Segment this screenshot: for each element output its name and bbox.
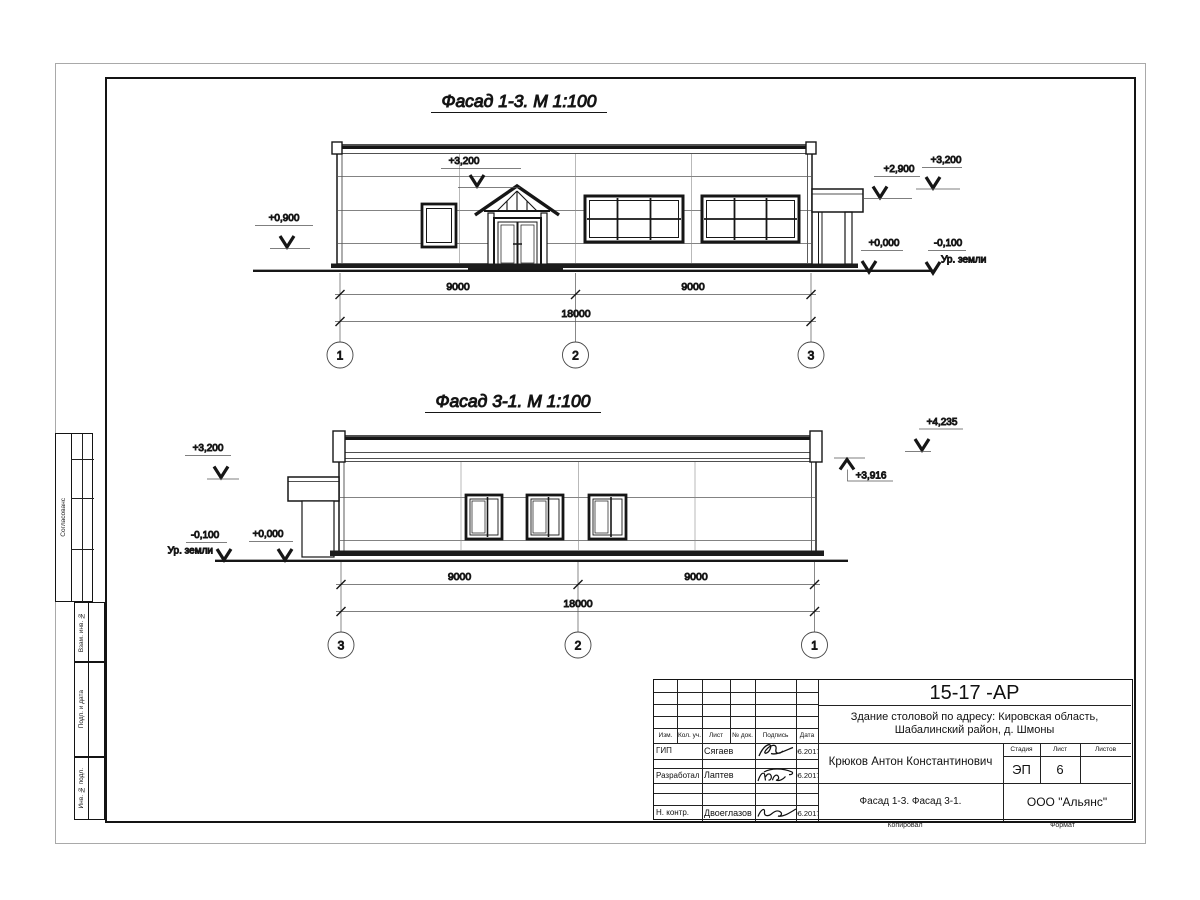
elevation-label: +3,200 bbox=[193, 443, 224, 454]
col-kol-uch: Кол. уч. bbox=[677, 728, 702, 743]
agreed-label: Согласованс bbox=[60, 498, 67, 537]
elevation-label: +3,916 bbox=[856, 471, 887, 482]
title-block: Изм. Кол. уч. Лист № док. Подпись Дата Г… bbox=[653, 679, 1133, 820]
approval-stamp-box: Согласованс bbox=[55, 433, 93, 602]
document-number: 15-17 -АР bbox=[818, 680, 1131, 705]
role-developer: Разработал bbox=[654, 768, 704, 783]
facade1-title: Фасад 1-3. М 1:100 bbox=[442, 91, 597, 111]
ground-level-label: Ур. земли bbox=[168, 546, 213, 557]
facade1-window-small bbox=[422, 204, 456, 247]
elevation-label: -0,100 bbox=[191, 530, 220, 541]
facade-1-3: Фасад 1-3. М 1:100 bbox=[253, 91, 986, 368]
role-ncontrol: Н. контр. bbox=[654, 805, 704, 821]
date-ncontrol: 06.2017 bbox=[796, 805, 818, 821]
company-name: ООО "Альянс" bbox=[1003, 783, 1131, 821]
vzam-inv-cell: Взам. инв. № bbox=[74, 602, 105, 662]
facade2-window-1 bbox=[466, 495, 502, 539]
chief-name: Крюков Антон Константинович bbox=[818, 743, 1003, 783]
facade2-dimensions: 9000 9000 18000 3 2 1 bbox=[328, 562, 828, 658]
dim-label: 9000 bbox=[684, 571, 708, 583]
name-gip: Сягаев bbox=[702, 743, 757, 759]
format-label: Формат bbox=[1030, 822, 1095, 829]
elevation-label: +3,200 bbox=[449, 156, 480, 167]
project-name-line2: Шабалинский район, д. Шмоны bbox=[895, 724, 1055, 737]
role-gip: ГИП bbox=[654, 743, 704, 759]
drawing-title: Фасад 1-3. Фасад 3-1. bbox=[818, 783, 1003, 821]
facade1-window-b bbox=[702, 196, 799, 242]
col-ndok: № док. bbox=[730, 728, 755, 743]
signature-gip bbox=[756, 740, 796, 760]
elevation-label: +2,900 bbox=[884, 164, 915, 175]
podp-data-label: Подп. и дата bbox=[78, 690, 85, 728]
facade2-side-porch bbox=[288, 477, 339, 557]
inv-podl-label: Инв. № подл. bbox=[78, 768, 85, 809]
axis-bubble-3: 3 bbox=[808, 349, 815, 363]
name-developer: Лаптев bbox=[702, 768, 757, 783]
dim-label: 9000 bbox=[448, 571, 472, 583]
dim-label: 9000 bbox=[681, 281, 705, 293]
signature-developer bbox=[756, 767, 796, 784]
facade-3-1: Фасад 3-1. М 1:100 bbox=[168, 391, 963, 658]
elevation-label: -0,100 bbox=[934, 238, 963, 249]
axis-bubble-2: 2 bbox=[575, 639, 582, 653]
axis-bubble-1: 1 bbox=[337, 349, 344, 363]
elevation-label: +3,200 bbox=[931, 155, 962, 166]
col-data: Дата bbox=[796, 728, 818, 743]
date-developer: 06.2017 bbox=[796, 768, 818, 783]
stage-header: Стадия bbox=[1003, 743, 1040, 756]
axis-bubble-1: 1 bbox=[811, 639, 818, 653]
dim-label: 18000 bbox=[563, 598, 592, 610]
dim-label: 9000 bbox=[446, 281, 470, 293]
facade1-side-porch bbox=[812, 189, 863, 264]
facade2-title: Фасад 3-1. М 1:100 bbox=[436, 391, 591, 411]
copied-label: Копировал bbox=[870, 822, 940, 829]
facade1-dimensions: 9000 9000 18000 1 2 3 bbox=[327, 273, 824, 368]
col-izm: Изм. bbox=[654, 728, 677, 743]
facade1-window-a bbox=[585, 196, 683, 242]
podp-data-cell: Подп. и дата bbox=[74, 662, 105, 757]
elevation-label: +0,000 bbox=[869, 238, 900, 249]
axis-bubble-2: 2 bbox=[572, 349, 579, 363]
elevation-label: +0,000 bbox=[253, 529, 284, 540]
elevation-label: +4,235 bbox=[927, 417, 958, 428]
dim-label: 18000 bbox=[561, 308, 590, 320]
project-name: Здание столовой по адресу: Кировская обл… bbox=[818, 705, 1131, 743]
sheet-number: 6 bbox=[1040, 756, 1080, 783]
project-name-line1: Здание столовой по адресу: Кировская обл… bbox=[851, 711, 1099, 724]
ground-level-label: Ур. земли bbox=[941, 255, 986, 266]
sheet-header: Лист bbox=[1040, 743, 1080, 756]
axis-bubble-3: 3 bbox=[338, 639, 345, 653]
signature-ncontrol bbox=[756, 803, 798, 821]
name-ncontrol: Двоеглазов bbox=[702, 805, 757, 821]
inv-podl-cell: Инв. № подл. bbox=[74, 757, 105, 820]
sheets-header: Листов bbox=[1080, 743, 1131, 756]
vzam-inv-label: Взам. инв. № bbox=[78, 612, 85, 652]
date-gip: 06.2017 bbox=[796, 743, 818, 759]
facade2-window-3 bbox=[589, 495, 626, 539]
facade2-window-2 bbox=[527, 495, 563, 539]
col-list: Лист bbox=[702, 728, 730, 743]
elevation-label: +0,900 bbox=[269, 213, 300, 224]
facade2-wall bbox=[339, 436, 816, 554]
stage-value: ЭП bbox=[1003, 756, 1040, 783]
